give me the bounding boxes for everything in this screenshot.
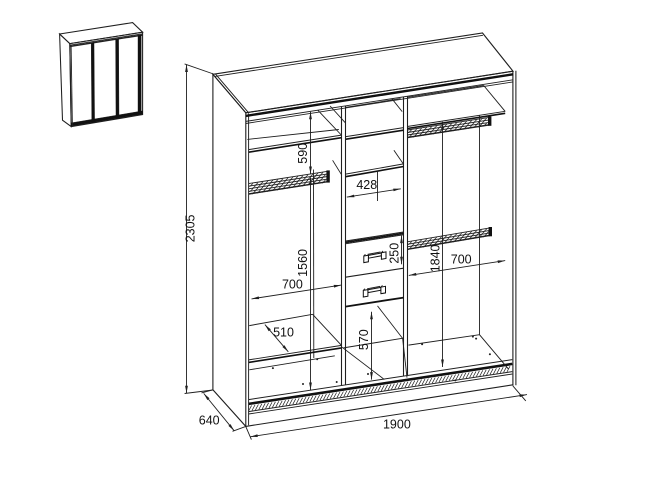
svg-text:700: 700 [282,278,303,292]
svg-text:1840: 1840 [428,244,442,272]
svg-text:428: 428 [356,178,377,192]
svg-text:250: 250 [388,243,402,264]
svg-text:1900: 1900 [383,418,411,432]
svg-text:570: 570 [357,329,371,350]
svg-text:510: 510 [273,325,294,339]
svg-text:1560: 1560 [296,249,310,277]
svg-text:640: 640 [199,414,220,428]
svg-text:590: 590 [296,143,310,164]
svg-text:700: 700 [451,252,472,266]
svg-text:2305: 2305 [184,214,198,242]
